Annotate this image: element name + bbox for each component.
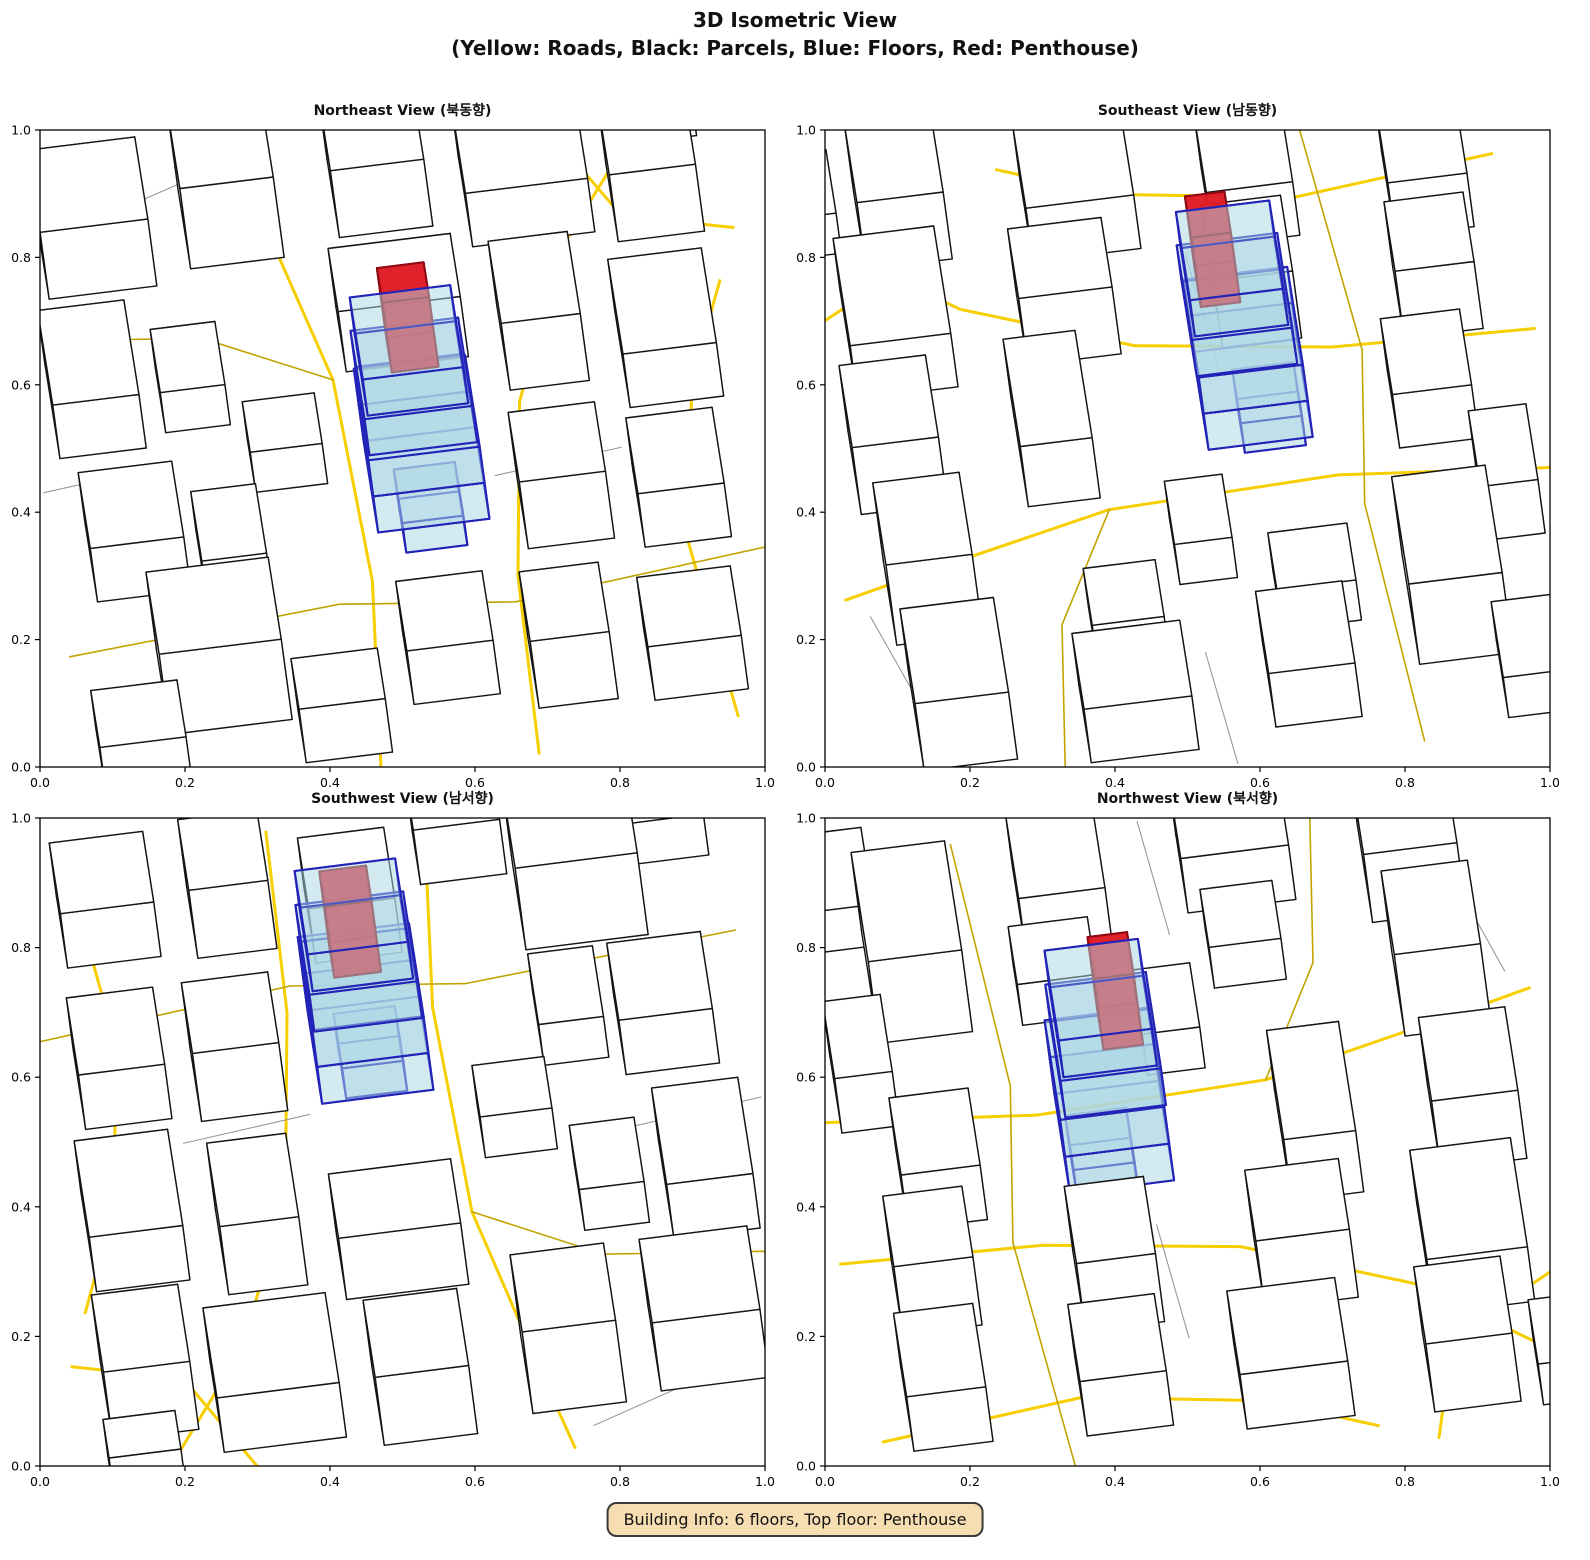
- building-block-face: [413, 819, 506, 884]
- building-block: [396, 571, 501, 705]
- building-block-face: [1083, 560, 1164, 626]
- building-block: [363, 1289, 478, 1446]
- building-block-face: [608, 248, 717, 354]
- figure-title: 3D Isometric View: [0, 8, 1590, 32]
- building-block: [510, 1243, 626, 1413]
- view-canvas-nw: 0.00.00.20.20.40.40.60.60.80.81.01.0: [785, 800, 1580, 1501]
- building-block-face: [608, 800, 700, 808]
- building-block-face: [1414, 1256, 1512, 1344]
- building-block-face: [150, 322, 225, 393]
- target-floor-5-face: [1176, 201, 1283, 301]
- building-block-face: [1381, 860, 1480, 954]
- building-block: [203, 1293, 346, 1453]
- building-block: [607, 932, 720, 1075]
- y-tick-label: 0.4: [796, 1199, 816, 1214]
- scene-layer: [19, 112, 783, 788]
- building-block-face: [1080, 1371, 1174, 1436]
- y-tick-label: 0.0: [796, 1459, 816, 1474]
- target-floor-5-face: [350, 285, 464, 379]
- building-block: [27, 137, 157, 299]
- y-tick-label: 0.2: [11, 1329, 31, 1344]
- building-block-face: [103, 1411, 181, 1459]
- building-block-face: [530, 632, 618, 709]
- building-block-face: [851, 841, 962, 962]
- x-tick-label: 0.0: [815, 1474, 835, 1489]
- building-block: [597, 112, 704, 242]
- building-block-face: [508, 402, 605, 482]
- x-tick-label: 0.8: [610, 1474, 630, 1489]
- building-block-face: [49, 831, 153, 913]
- building-block: [318, 112, 433, 238]
- building-block-face: [519, 471, 614, 549]
- subplot-southwest: Southwest View (남서향) 0.00.00.20.20.40.40…: [0, 786, 795, 1498]
- building-block: [1068, 1294, 1174, 1436]
- building-block-face: [652, 1077, 753, 1184]
- building-block-face: [1200, 881, 1281, 948]
- building-block-face: [1227, 1278, 1348, 1375]
- building-block-face: [38, 300, 139, 405]
- target-floor-5: [1176, 201, 1288, 337]
- building-block-face: [1392, 465, 1502, 584]
- building-block: [502, 800, 648, 950]
- y-tick-label: 0.2: [796, 1329, 816, 1344]
- building-block: [639, 1226, 769, 1391]
- y-tick-label: 0.0: [796, 760, 816, 775]
- building-block-face: [1072, 620, 1192, 709]
- building-block-face: [907, 1387, 993, 1451]
- building-block: [242, 393, 327, 492]
- x-tick-label: 0.4: [320, 1474, 340, 1489]
- building-block-face: [40, 219, 157, 299]
- building-block: [608, 248, 724, 408]
- building-block: [569, 1117, 649, 1230]
- building-block-face: [522, 1320, 626, 1413]
- view-canvas-sw: 0.00.00.20.20.40.40.60.60.80.81.01.0: [0, 800, 795, 1501]
- building-block-face: [363, 1289, 469, 1378]
- building-block-face: [193, 1043, 288, 1122]
- building-block: [1227, 1278, 1355, 1429]
- building-block: [528, 946, 609, 1066]
- building-block: [91, 680, 192, 788]
- y-tick-label: 1.0: [796, 811, 816, 826]
- building-block-face: [91, 1284, 189, 1372]
- building-block: [103, 1411, 186, 1499]
- building-block-face: [1268, 523, 1356, 590]
- y-tick-label: 0.4: [11, 505, 31, 520]
- target-floor-5: [350, 285, 469, 416]
- building-block-face: [299, 699, 392, 763]
- building-block: [1528, 1294, 1580, 1404]
- building-block-face: [785, 155, 798, 258]
- building-block-face: [74, 1129, 183, 1237]
- building-block-face: [488, 232, 580, 324]
- y-tick-label: 0.6: [796, 1070, 816, 1085]
- building-block-face: [833, 226, 951, 346]
- building-block-face: [796, 836, 814, 954]
- building-block-face: [839, 355, 938, 448]
- building-block-face: [1194, 112, 1292, 192]
- building-block: [488, 232, 589, 391]
- building-block: [181, 972, 287, 1121]
- building-block-face: [519, 562, 609, 641]
- building-block-face: [1375, 112, 1467, 183]
- building-block-face: [785, 150, 836, 218]
- building-block-face: [168, 112, 274, 189]
- building-block: [519, 562, 618, 708]
- building-info-badge: Building Info: 6 floors, Top floor: Pent…: [607, 1502, 984, 1537]
- building-block: [451, 112, 594, 247]
- x-tick-label: 1.0: [755, 1474, 775, 1489]
- building-block-face: [1013, 113, 1134, 208]
- y-tick-label: 1.0: [796, 123, 816, 138]
- y-tick-label: 0.4: [796, 505, 816, 520]
- building-block-face: [79, 1064, 172, 1129]
- building-block-face: [181, 972, 278, 1053]
- building-block-face: [1064, 1177, 1155, 1264]
- building-block-face: [639, 1226, 760, 1323]
- building-block-face: [1491, 594, 1568, 678]
- building-block-face: [652, 1309, 769, 1391]
- x-tick-label: 0.6: [465, 1474, 485, 1489]
- subplot-southeast: Southeast View (남동향) 0.00.00.20.20.40.40…: [785, 98, 1580, 798]
- view-canvas-se: 0.00.00.20.20.40.40.60.60.80.81.01.0: [785, 112, 1580, 802]
- building-block-face: [1269, 663, 1362, 727]
- building-block-face: [915, 692, 1017, 770]
- building-block-face: [1410, 1138, 1528, 1260]
- x-tick-label: 0.2: [960, 1474, 980, 1489]
- building-block-face: [1556, 594, 1574, 710]
- x-tick-label: 0.6: [1250, 1474, 1270, 1489]
- building-block-face: [1419, 1007, 1518, 1101]
- building-block-face: [1175, 537, 1238, 584]
- building-block-face: [1245, 1159, 1350, 1241]
- y-tick-label: 0.2: [11, 632, 31, 647]
- building-block-face: [1426, 1333, 1521, 1412]
- building-block-face: [291, 648, 385, 709]
- building-block-face: [607, 932, 713, 1021]
- building-block: [900, 598, 1018, 771]
- building-block-face: [1164, 474, 1232, 544]
- target-floor-5-face: [295, 858, 409, 954]
- building-block: [178, 810, 277, 959]
- y-tick-label: 0.6: [796, 377, 816, 392]
- building-block-face: [823, 994, 893, 1078]
- parcel-boundary: [1205, 652, 1238, 764]
- building-block-face: [609, 164, 704, 242]
- figure-subtitle: (Yellow: Roads, Black: Parcels, Blue: Fl…: [0, 36, 1590, 60]
- building-block-face: [242, 393, 322, 452]
- building-block-face: [375, 1366, 477, 1446]
- y-tick-label: 0.0: [11, 760, 31, 775]
- building-block-face: [637, 566, 741, 647]
- y-tick-label: 0.8: [11, 940, 31, 955]
- target-floor-5: [295, 858, 414, 991]
- building-block: [1381, 860, 1491, 1036]
- target-floor-5-face: [1045, 939, 1153, 1041]
- building-block: [329, 1159, 469, 1300]
- building-block-face: [1528, 1294, 1580, 1364]
- building-block-face: [66, 987, 164, 1075]
- x-tick-label: 0.0: [30, 1474, 50, 1489]
- building-block-face: [900, 598, 1009, 704]
- y-tick-label: 0.8: [796, 250, 816, 265]
- building-block: [472, 1057, 557, 1158]
- target-floor-5: [1045, 939, 1157, 1077]
- building-block-face: [146, 557, 281, 654]
- building-block-face: [178, 810, 268, 891]
- building-block-face: [889, 1088, 980, 1175]
- building-block: [652, 1077, 761, 1239]
- building-block-face: [396, 571, 493, 651]
- building-block: [38, 300, 147, 459]
- building-block: [49, 831, 161, 968]
- building-block: [1491, 594, 1573, 718]
- building-block-face: [626, 407, 724, 493]
- building-block-face: [894, 1303, 986, 1396]
- y-tick-label: 0.0: [11, 1459, 31, 1474]
- scene-layer: [21, 800, 785, 1499]
- building-block-face: [1068, 1294, 1166, 1382]
- building-block-face: [191, 484, 267, 561]
- building-block-face: [1380, 309, 1471, 394]
- building-block: [626, 407, 732, 547]
- building-block-face: [569, 1117, 644, 1189]
- building-block: [1072, 620, 1199, 763]
- building-block-face: [220, 1217, 308, 1295]
- y-tick-label: 0.6: [11, 1070, 31, 1085]
- building-block-face: [330, 159, 432, 237]
- building-block: [405, 800, 506, 885]
- subplot-northeast: Northeast View (북동향) 0.00.00.20.20.40.40…: [0, 98, 795, 798]
- building-block-face: [472, 1057, 552, 1117]
- building-block-face: [528, 946, 604, 1025]
- y-tick-label: 1.0: [11, 811, 31, 826]
- x-tick-label: 0.4: [1105, 1474, 1125, 1489]
- building-block-face: [203, 1293, 339, 1398]
- building-block-face: [207, 1133, 299, 1226]
- y-tick-label: 0.2: [796, 632, 816, 647]
- x-tick-label: 1.0: [1540, 1474, 1560, 1489]
- y-tick-label: 0.6: [11, 377, 31, 392]
- building-block-face: [78, 461, 184, 548]
- building-block: [150, 322, 230, 433]
- y-tick-label: 0.8: [796, 940, 816, 955]
- building-block-face: [845, 116, 943, 202]
- x-tick-label: 0.2: [175, 1474, 195, 1489]
- scene-layer: [785, 112, 1573, 785]
- building-block-face: [91, 680, 186, 747]
- building-block-face: [510, 1243, 615, 1332]
- building-block-face: [873, 472, 972, 565]
- building-block-face: [53, 395, 146, 459]
- scene-layer: [796, 800, 1580, 1483]
- building-block-face: [451, 112, 587, 193]
- building-block: [508, 402, 614, 549]
- building-block: [637, 566, 749, 700]
- building-block: [291, 648, 393, 763]
- y-tick-label: 0.8: [11, 250, 31, 265]
- building-block-face: [1393, 385, 1479, 448]
- building-block-face: [515, 853, 648, 950]
- y-tick-label: 0.4: [11, 1199, 31, 1214]
- subplot-northwest: Northwest View (북서향) 0.00.00.20.20.40.40…: [785, 786, 1580, 1498]
- building-block-face: [1538, 1359, 1580, 1405]
- view-canvas-ne: 0.00.00.20.20.40.40.60.60.80.81.01.0: [0, 112, 795, 802]
- building-block-face: [180, 177, 284, 269]
- building-block: [207, 1133, 308, 1294]
- x-tick-label: 0.8: [1395, 1474, 1415, 1489]
- building-block-face: [1020, 438, 1100, 507]
- building-block: [66, 987, 171, 1129]
- building-block-face: [597, 112, 695, 175]
- building-block-face: [1384, 192, 1474, 271]
- building-block: [1200, 881, 1286, 989]
- building-block-face: [1571, 1294, 1580, 1399]
- y-tick-label: 1.0: [11, 123, 31, 138]
- building-block-face: [27, 137, 148, 232]
- parcel-boundary: [1137, 821, 1170, 935]
- building-block-face: [189, 880, 277, 958]
- building-block-face: [501, 314, 589, 391]
- building-block: [74, 1129, 190, 1291]
- building-block-face: [883, 1186, 973, 1267]
- building-block: [168, 112, 284, 269]
- building-block-face: [1256, 581, 1355, 674]
- building-block-face: [1008, 218, 1112, 299]
